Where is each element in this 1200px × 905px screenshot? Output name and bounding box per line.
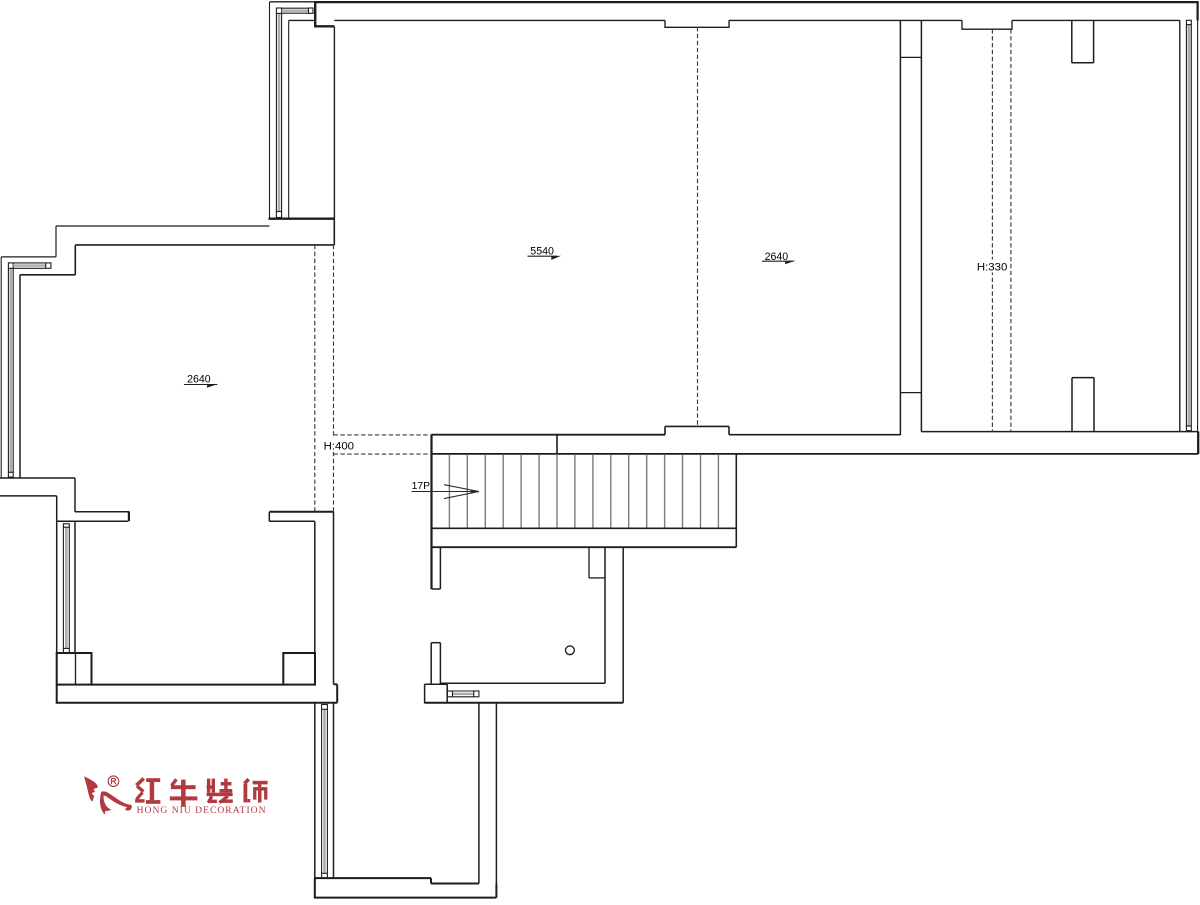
svg-text:H:400: H:400 [324,440,354,452]
svg-text:17P: 17P [412,481,431,492]
svg-text:HONG NIU DECORATION: HONG NIU DECORATION [137,805,267,816]
svg-text:2640: 2640 [187,374,211,386]
svg-text:H:330: H:330 [977,261,1007,273]
